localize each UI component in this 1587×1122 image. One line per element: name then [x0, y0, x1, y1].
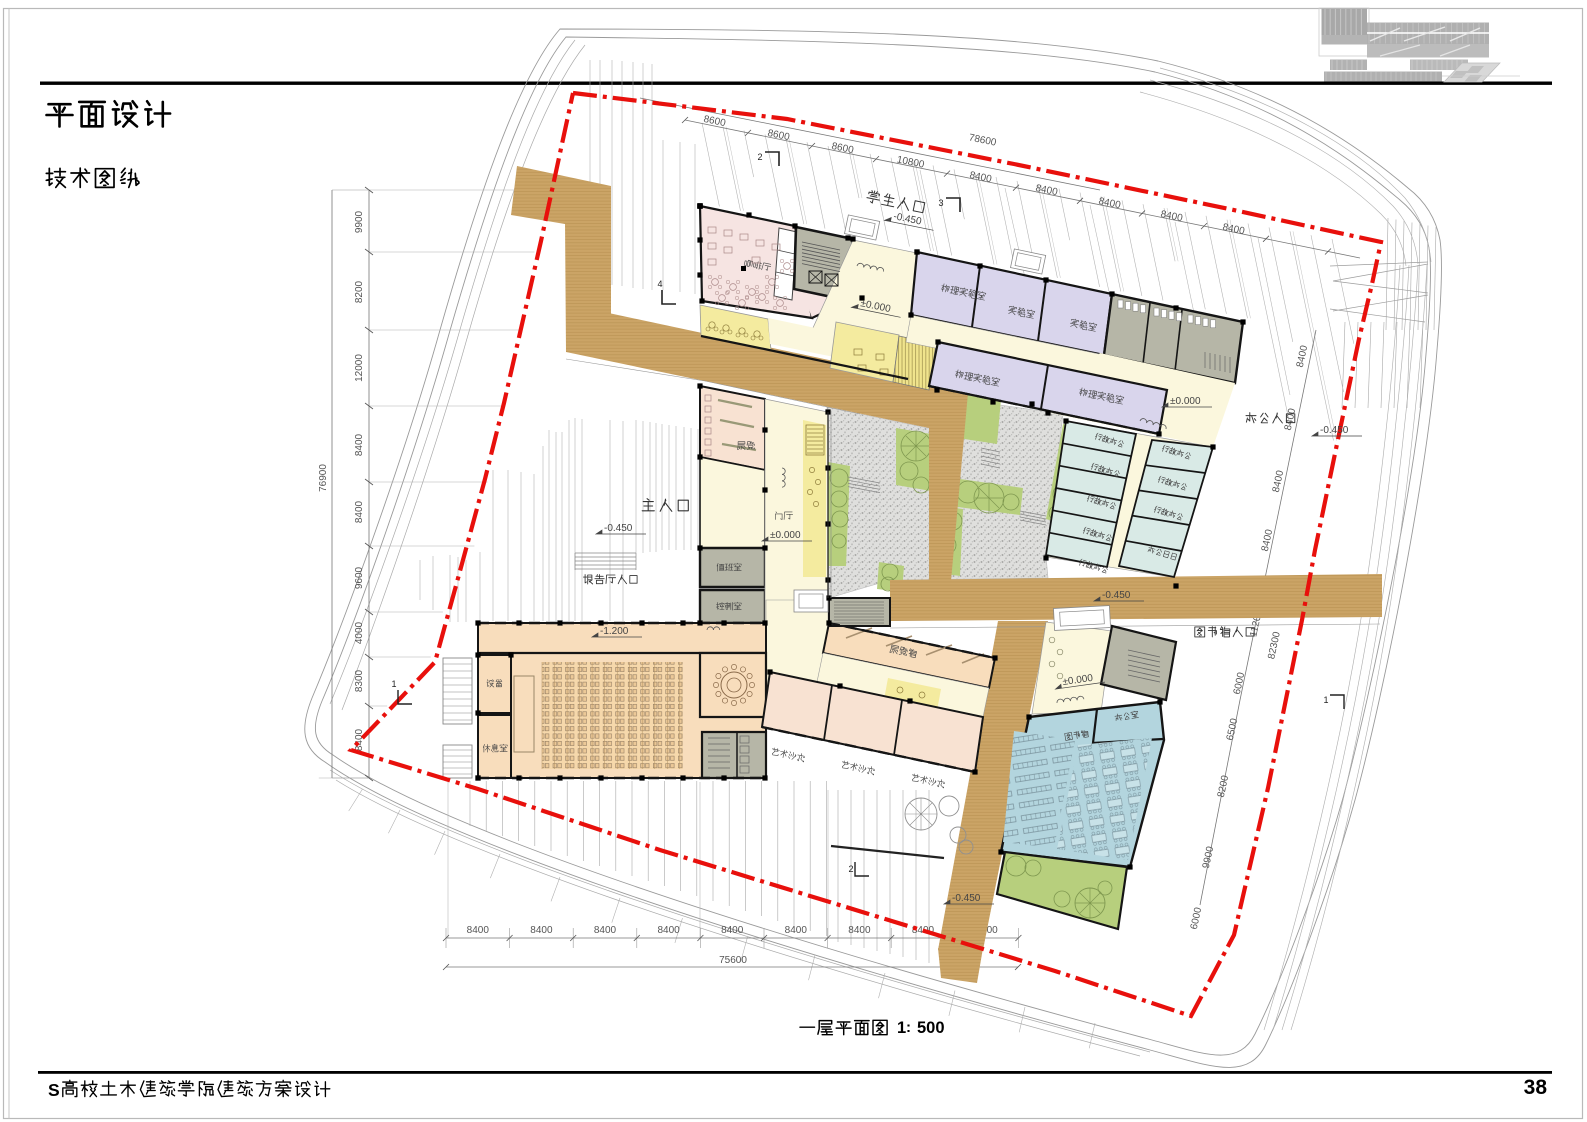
svg-text:8400: 8400: [657, 925, 680, 936]
svg-text:8400: 8400: [785, 925, 808, 936]
svg-text:4000: 4000: [354, 621, 365, 644]
svg-text:-0.450: -0.450: [952, 893, 981, 904]
svg-text:-0.450: -0.450: [1102, 590, 1131, 601]
svg-text:±0.000: ±0.000: [770, 530, 801, 541]
svg-text:1: 1: [1323, 695, 1328, 705]
svg-text:4: 4: [657, 279, 662, 289]
svg-text:8400: 8400: [848, 925, 871, 936]
svg-text:±0.000: ±0.000: [1170, 396, 1201, 407]
svg-text:S: S: [48, 1080, 60, 1100]
svg-text:38: 38: [1524, 1076, 1548, 1099]
svg-text:1: 1: [391, 679, 396, 689]
svg-text:8400: 8400: [354, 433, 365, 456]
svg-text:8400: 8400: [594, 925, 617, 936]
svg-text:-0.450: -0.450: [604, 523, 633, 534]
svg-text:8400: 8400: [354, 500, 365, 523]
svg-text:3: 3: [938, 198, 943, 208]
svg-text:8300: 8300: [354, 669, 365, 692]
svg-text:8400: 8400: [467, 925, 490, 936]
svg-text:8400: 8400: [721, 925, 744, 936]
svg-text:8200: 8200: [354, 280, 365, 303]
svg-text::: :: [906, 1019, 911, 1036]
svg-text:12000: 12000: [354, 354, 365, 382]
svg-text:8400: 8400: [530, 925, 553, 936]
svg-text:-0.450: -0.450: [1320, 425, 1349, 436]
svg-text:500: 500: [917, 1019, 945, 1037]
svg-text:-1.200: -1.200: [600, 626, 629, 637]
svg-text:76900: 76900: [318, 464, 329, 492]
svg-text:9900: 9900: [354, 210, 365, 233]
svg-text:1: 1: [897, 1019, 906, 1037]
svg-text:2: 2: [757, 152, 762, 162]
svg-text:2: 2: [848, 864, 853, 874]
svg-text:8400: 8400: [354, 728, 365, 751]
svg-text:9600: 9600: [354, 566, 365, 589]
svg-text:75600: 75600: [719, 955, 747, 966]
